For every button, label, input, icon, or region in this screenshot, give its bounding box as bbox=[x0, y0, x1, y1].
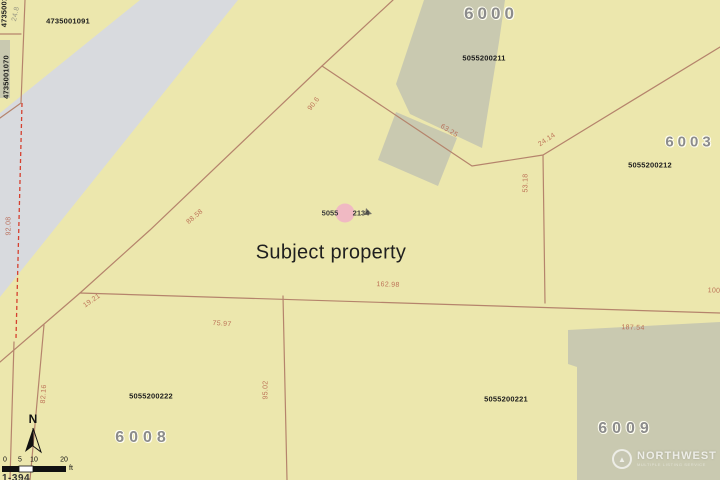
nwmls-logo-icon: ▲ bbox=[612, 449, 632, 469]
boundary-subject-north bbox=[322, 47, 720, 166]
road-band bbox=[0, 0, 238, 297]
watermark-subtitle: MULTIPLE LISTING SERVICE bbox=[637, 463, 717, 467]
boundary-far-west bbox=[10, 342, 14, 480]
subject-marker-dot[interactable] bbox=[336, 204, 355, 223]
watermark-title: NORTHWEST bbox=[637, 451, 717, 462]
watermark: ▲ NORTHWEST MULTIPLE LISTING SERVICE bbox=[612, 444, 720, 474]
boundary-subject-east bbox=[543, 155, 545, 303]
subject-marker-pin-icon bbox=[365, 208, 372, 215]
parcel-map-canvas[interactable]: 6000600360086009473500109147350010704735… bbox=[0, 0, 720, 480]
boundary-south-long bbox=[80, 293, 720, 313]
building-footprint-left-edge bbox=[0, 40, 10, 98]
scale-bar bbox=[2, 466, 66, 472]
scale-unit-label: ft bbox=[69, 465, 73, 472]
boundary-lot-6008-east bbox=[283, 296, 287, 480]
boundary-lot-6008-west bbox=[30, 325, 44, 480]
map-page-reference: 1-394 bbox=[2, 473, 30, 480]
map-geometry-layer bbox=[0, 0, 720, 480]
